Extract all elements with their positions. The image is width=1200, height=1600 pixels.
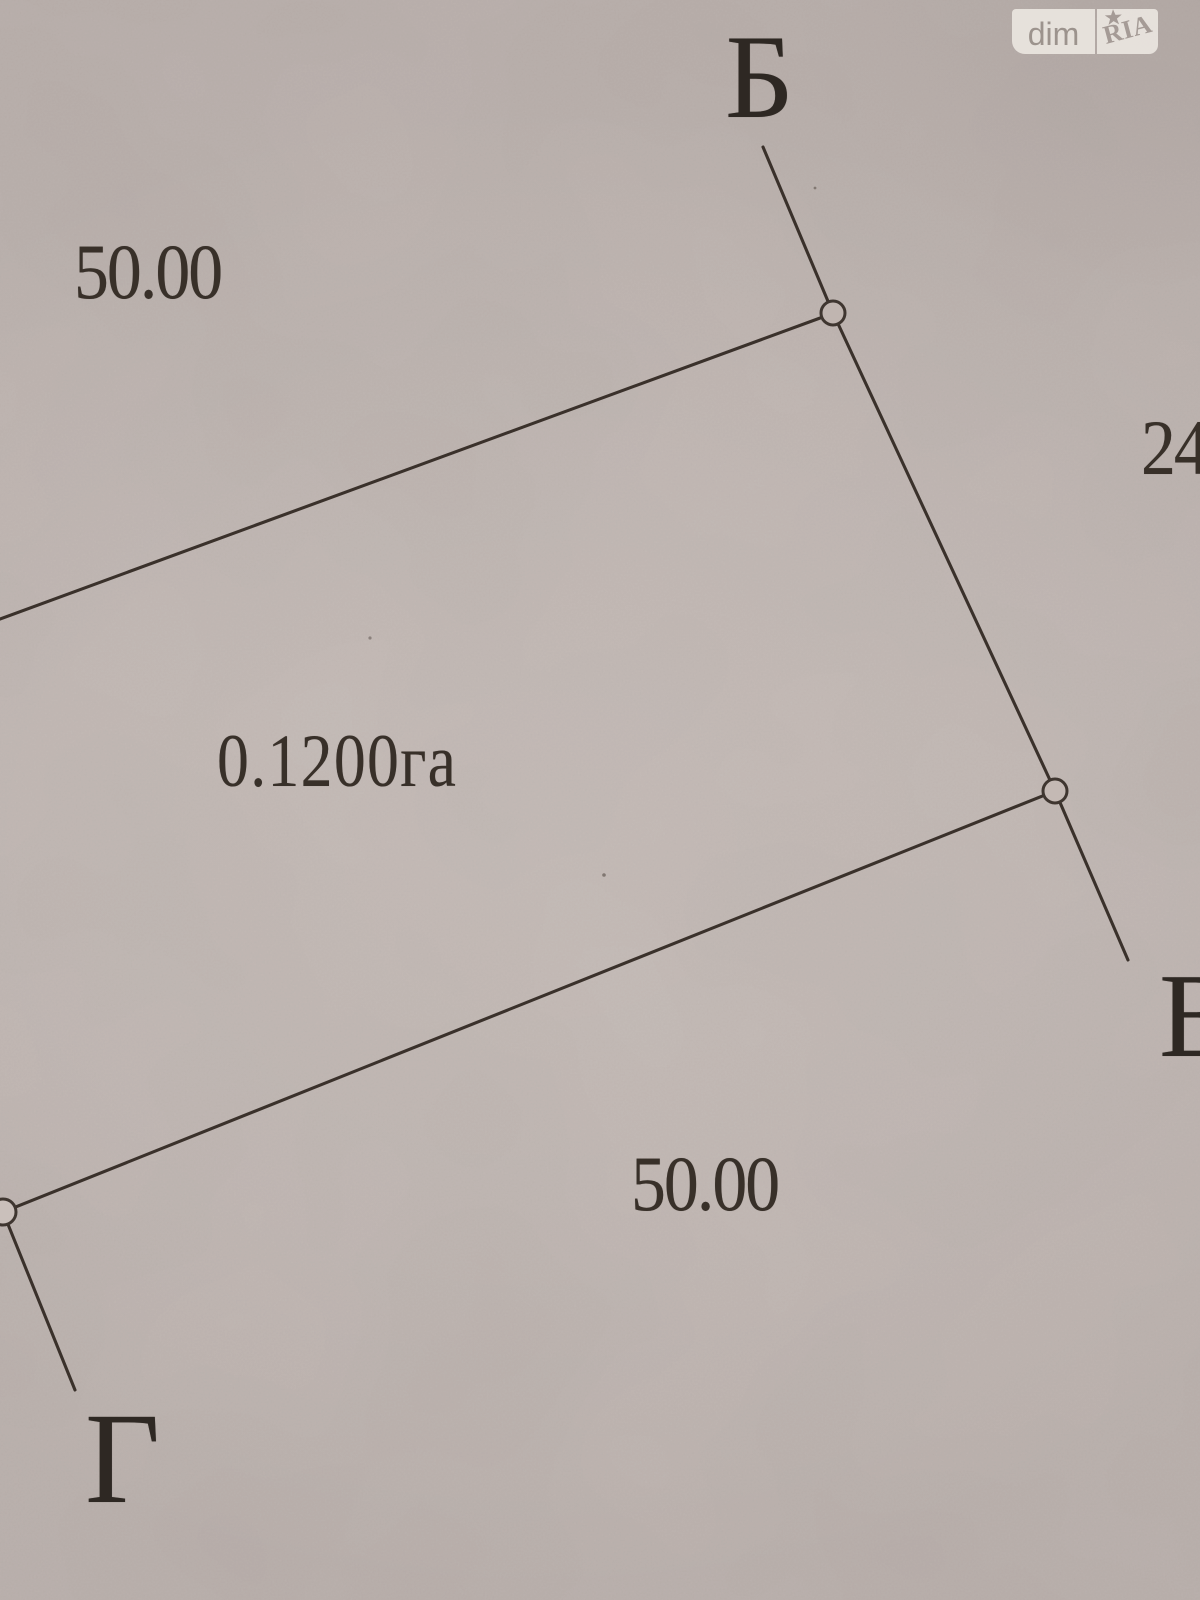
svg-text:RIA: RIA [1100, 9, 1155, 50]
